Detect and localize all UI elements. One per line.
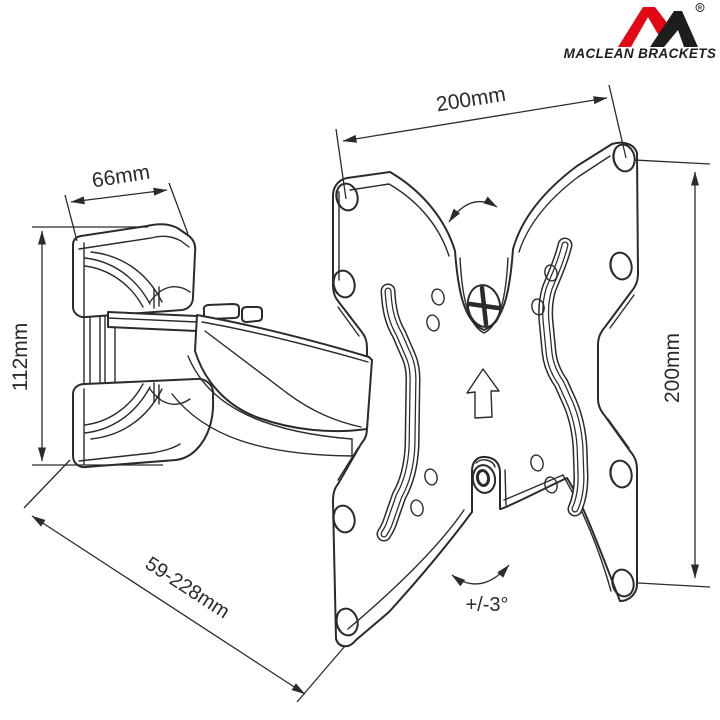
rotation-arrow-top-icon [449,202,497,222]
drawing-svg: 200mm 200mm 66mm 112mm 59-228mm +/-3° R … [0,0,720,720]
rotation-arrow-bottom-icon [452,565,509,584]
annotation-tilt-angle: +/-3° [465,594,508,616]
dimension-extension-range: 59-228mm [24,460,345,702]
dimension-plate-height: 200mm [634,160,710,587]
plate-height-label: 200mm [661,333,684,403]
plate-outline [333,143,638,647]
tilt-angle-label: +/-3° [465,594,508,616]
technical-drawing-page: 200mm 200mm 66mm 112mm 59-228mm +/-3° R … [0,0,720,720]
arm-hinge-lug-2 [242,307,262,322]
extension-range-label: 59-228mm [141,553,233,624]
phillips-cross-icon [470,288,498,324]
vesa-plate [331,142,638,646]
wall-bracket [73,224,213,467]
plate-width-label: 200mm [435,83,508,117]
brand-name-label: MACLEAN BRACKETS [564,46,717,61]
bracket-top-cap [73,224,195,317]
bracket-depth-label: 66mm [90,161,151,193]
registered-mark-label: R [698,6,702,12]
brand-logo: R MACLEAN BRACKETS [564,4,717,62]
bracket-height-label: 112mm [9,323,32,391]
arm-elbow-body [195,315,372,431]
